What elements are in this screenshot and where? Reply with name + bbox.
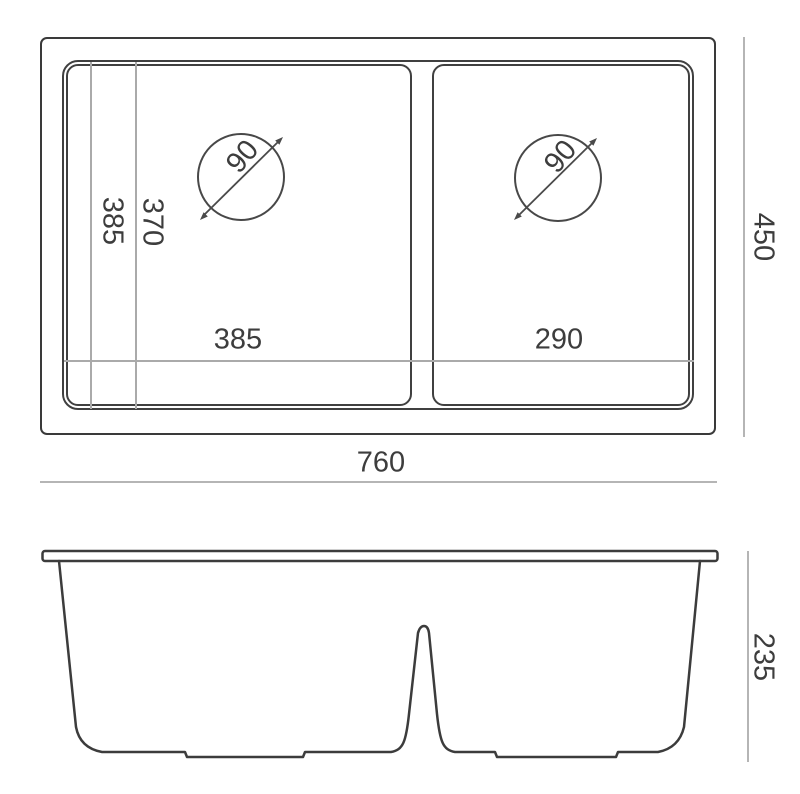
dim-label-height: 235 [749, 633, 778, 681]
dim-label-bowl-length: 385 [98, 197, 127, 245]
dim-label-overall-width: 760 [357, 449, 405, 478]
dim-label-right-bowl-width: 290 [535, 326, 583, 355]
dim-label-bowl-inner-length: 370 [138, 198, 167, 246]
sink-front-view [43, 551, 718, 757]
dim-label-overall-depth: 450 [749, 213, 778, 261]
dim-label-left-bowl-width: 385 [214, 326, 262, 355]
drawing-overlay [0, 0, 800, 794]
front-view-bowl-profile [59, 561, 700, 757]
sink-technical-drawing: 385 370 90 90 385 290 760 450 235 [0, 0, 800, 794]
front-view-rim-slab [43, 551, 718, 561]
